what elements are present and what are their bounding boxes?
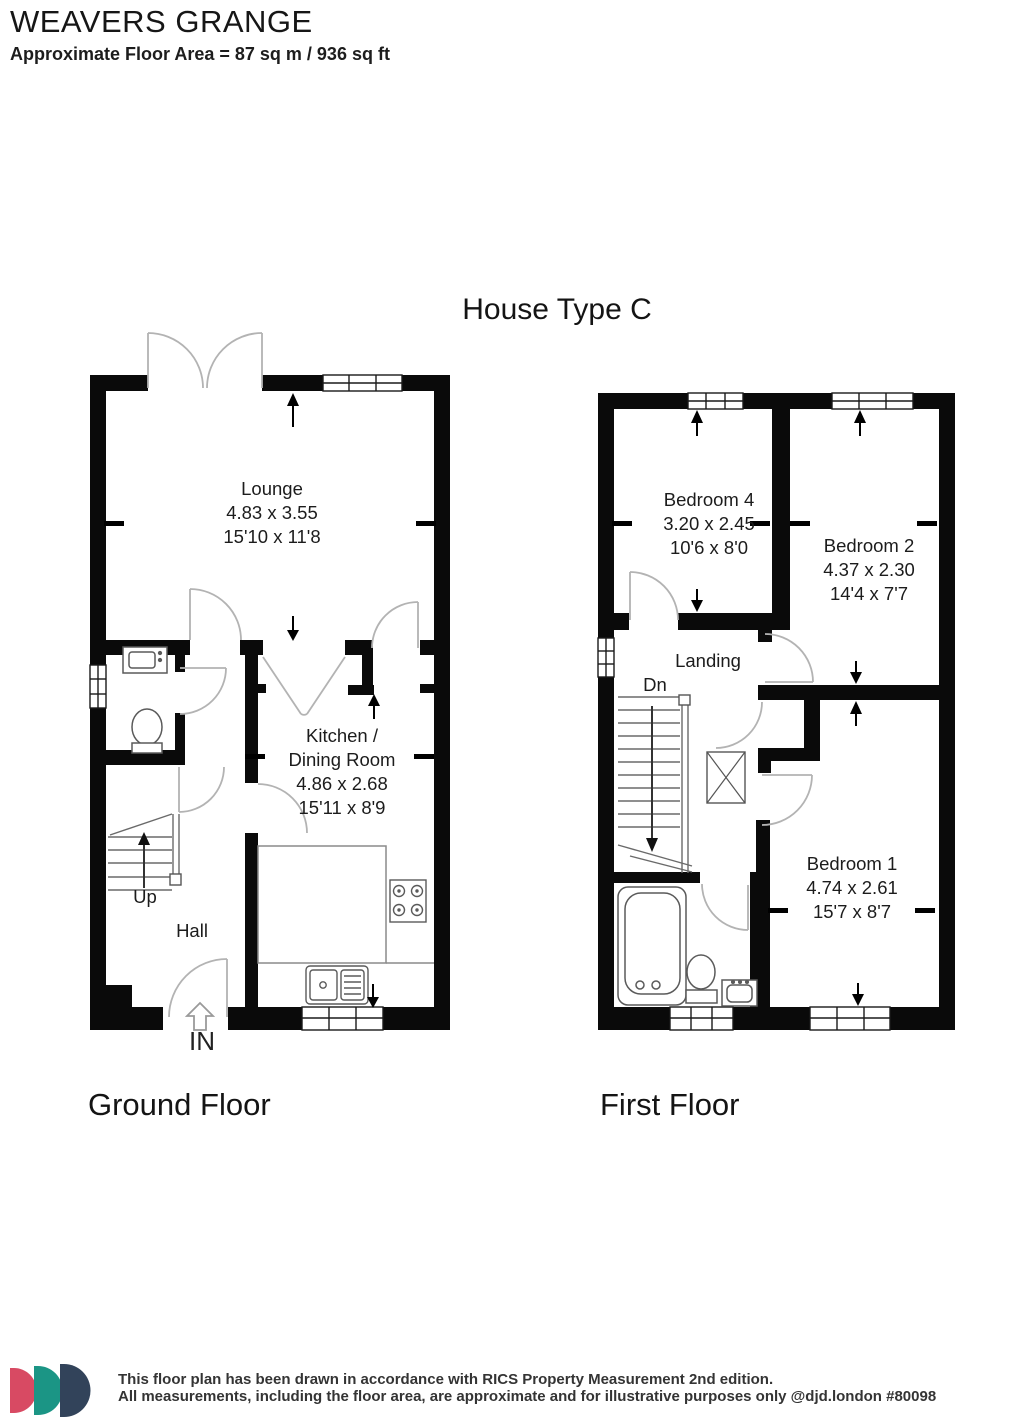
- wc-toilet: [132, 709, 162, 753]
- bedroom2-imperial: 14'4 x 7'7: [823, 582, 915, 606]
- ground-floor-title: Ground Floor: [88, 1087, 271, 1123]
- stairs-first: [618, 695, 692, 873]
- window-bedroom1-bottom: [810, 1007, 890, 1030]
- floorplan-drawing: [0, 0, 1024, 1421]
- bedroom1-door: [762, 775, 812, 825]
- bedroom1-metric: 4.74 x 2.61: [806, 876, 898, 900]
- lounge-name: Lounge: [223, 477, 320, 501]
- bathroom-toilet: [686, 955, 717, 1003]
- bedroom4-name: Bedroom 4: [663, 488, 755, 512]
- bedroom4-metric: 3.20 x 2.45: [663, 512, 755, 536]
- window-lounge-top: [323, 375, 402, 391]
- dn-label: Dn: [643, 674, 667, 696]
- footer-disclaimer-line2: All measurements, including the floor ar…: [118, 1388, 936, 1405]
- kitchen-right-door: [372, 602, 418, 648]
- kitchen-name-line1: Kitchen /: [289, 724, 396, 748]
- bathroom-fixtures: [618, 887, 757, 1006]
- bedroom1-label: Bedroom 1 4.74 x 2.61 15'7 x 8'7: [806, 852, 898, 924]
- kitchen-appliances: [306, 880, 426, 1004]
- wc-basin: [123, 647, 167, 673]
- bedroom2-label: Bedroom 2 4.37 x 2.30 14'4 x 7'7: [823, 534, 915, 606]
- kitchen-label: Kitchen / Dining Room 4.86 x 2.68 15'11 …: [289, 724, 396, 820]
- page-title: WEAVERS GRANGE: [10, 4, 313, 40]
- footer-disclaimer-line1: This floor plan has been drawn in accord…: [118, 1371, 773, 1388]
- lounge-label: Lounge 4.83 x 3.55 15'10 x 11'8: [223, 477, 320, 549]
- cupboard-door: [716, 702, 762, 748]
- landing-label: Landing: [675, 650, 741, 672]
- first-floor-plan: [598, 393, 955, 1030]
- airing-cupboard: [707, 752, 745, 803]
- in-label: IN: [189, 1026, 215, 1057]
- window-bathroom-bottom: [670, 1007, 733, 1030]
- bedroom2-metric: 4.37 x 2.30: [823, 558, 915, 582]
- wc-door: [180, 668, 226, 714]
- french-doors-lounge: [148, 333, 262, 388]
- house-type-heading: House Type C: [462, 293, 652, 327]
- lounge-imperial: 15'10 x 11'8: [223, 525, 320, 549]
- bedroom4-imperial: 10'6 x 8'0: [663, 536, 755, 560]
- bedroom4-label: Bedroom 4 3.20 x 2.45 10'6 x 8'0: [663, 488, 755, 560]
- agency-logo-icon: [10, 1364, 91, 1417]
- window-bedroom4-top: [688, 393, 743, 409]
- lounge-metric: 4.83 x 3.55: [223, 501, 320, 525]
- ground-floor-walls: [90, 375, 450, 1030]
- kitchen-name-line2: Dining Room: [289, 748, 396, 772]
- hall-label: Hall: [176, 920, 208, 942]
- floorplan-page: WEAVERS GRANGE Approximate Floor Area = …: [0, 0, 1024, 1421]
- window-bedroom2-top: [832, 393, 913, 409]
- bedroom2-name: Bedroom 2: [823, 534, 915, 558]
- window-wc-left: [90, 665, 106, 708]
- ground-floor-plan: [90, 333, 450, 1030]
- lounge-door: [190, 589, 241, 640]
- bedroom4-door: [630, 572, 678, 620]
- kitchen-double-doors: [263, 657, 345, 715]
- dn-arrow-icon: [646, 706, 658, 852]
- bedroom1-imperial: 15'7 x 8'7: [806, 900, 898, 924]
- kitchen-imperial: 15'11 x 8'9: [289, 796, 396, 820]
- bathroom-basin: [722, 980, 757, 1006]
- bedroom1-name: Bedroom 1: [806, 852, 898, 876]
- floor-area-subtitle: Approximate Floor Area = 87 sq m / 936 s…: [10, 44, 390, 65]
- window-landing-left: [598, 638, 614, 677]
- up-label: Up: [133, 886, 157, 908]
- first-floor-title: First Floor: [600, 1087, 740, 1123]
- up-arrow-icon: [138, 832, 150, 888]
- ground-floor-doors: [148, 333, 418, 1017]
- bedroom2-door: [765, 634, 813, 682]
- bath-tub: [618, 887, 686, 1005]
- window-kitchen-bottom: [302, 1007, 383, 1030]
- kitchen-metric: 4.86 x 2.68: [289, 772, 396, 796]
- kitchen-hob: [390, 880, 426, 922]
- wc-fixtures: [123, 647, 167, 753]
- understairs-door: [179, 767, 224, 812]
- bathroom-door: [702, 884, 748, 930]
- kitchen-sink: [306, 966, 368, 1004]
